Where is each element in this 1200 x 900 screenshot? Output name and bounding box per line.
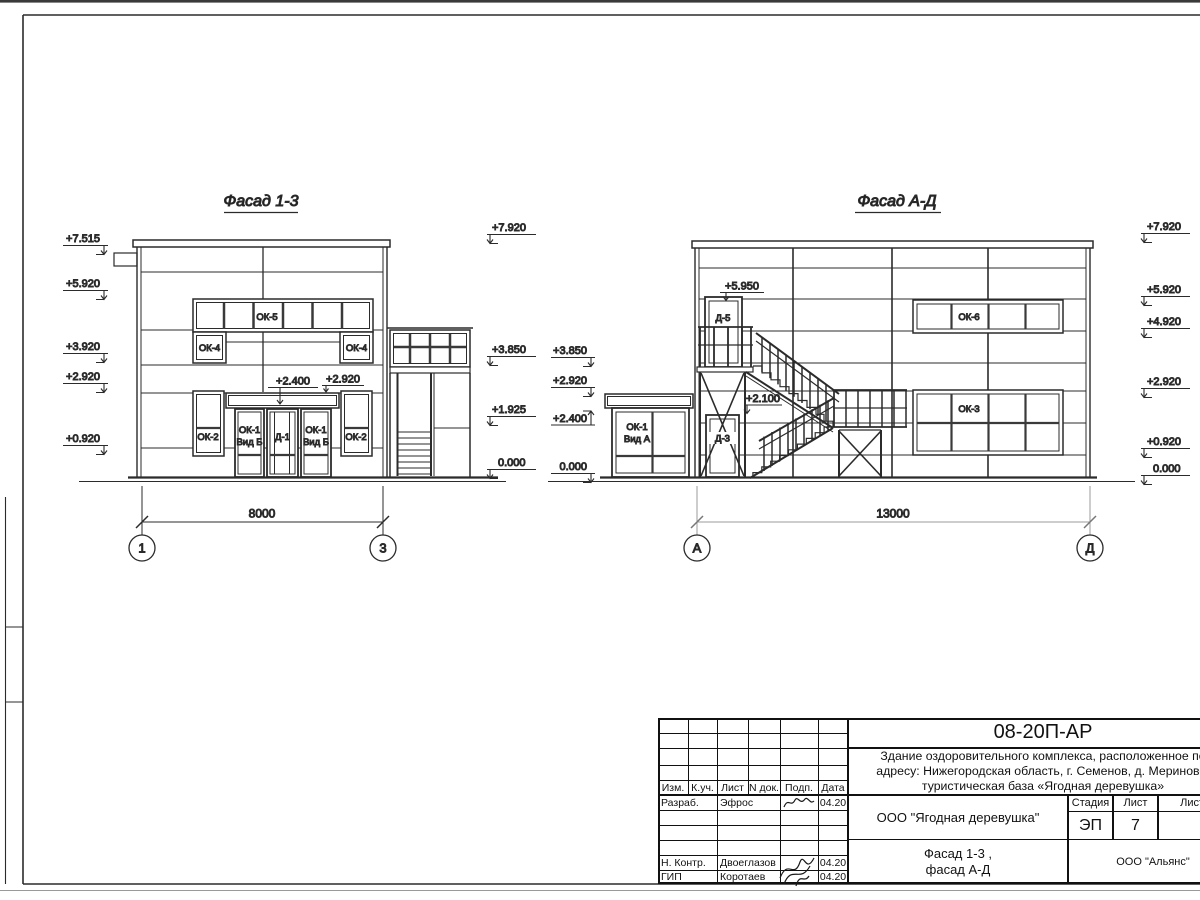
window-label: ОК-6 xyxy=(958,312,979,323)
stamp-role: Разраб. xyxy=(658,795,717,810)
elevation-mark-label: +2.920 xyxy=(1147,376,1181,388)
stair-tower: Д-3 xyxy=(700,372,745,477)
axes-fad: 13000 А Д xyxy=(684,486,1103,561)
elevation-mark-label: +2.100 xyxy=(746,393,780,405)
elevation-mark-label: 0.000 xyxy=(559,461,587,473)
window-label: ОК-5 xyxy=(256,312,277,323)
window-label: ОК-2 xyxy=(197,432,218,443)
dimension-label: 13000 xyxy=(876,507,910,521)
window-label: Вид Б xyxy=(236,437,262,448)
elevation-mark-label: +5.920 xyxy=(1147,284,1181,296)
signature xyxy=(780,795,818,810)
stamp-sheet-title-line2: фасад А-Д xyxy=(926,862,991,878)
elevation-marks-right: +7.920 +5.920 +4.920 +2.920 +0.920 0.000 xyxy=(1141,221,1190,485)
elevation-marks-right: +7.920 +3.850 +1.925 0.000 xyxy=(487,222,536,479)
elevation-mark-label: +2.920 xyxy=(326,374,360,386)
stamp-col-podp: Подп. xyxy=(780,780,818,795)
window-ok2-right: ОК-2 xyxy=(341,391,372,456)
facade-a-d-drawing: Фасад А-Д ОК-6 xyxy=(548,193,1190,561)
stamp-sheets-label: Листов xyxy=(1158,795,1200,811)
parapet-cap xyxy=(133,240,390,247)
window-label: Вид А xyxy=(624,434,651,445)
door-label: Д-5 xyxy=(716,313,731,324)
elevation-mark-label: +3.920 xyxy=(66,341,100,353)
elevation-mark-label: 0.000 xyxy=(1153,463,1181,475)
window-label: ОК-4 xyxy=(346,343,367,354)
entrance-glazing: ОК-1 Вид Б Д-1 ОК-1 Вид Б xyxy=(235,409,331,477)
stamp-project-line3: туристическая база «Ягодная деревушка» xyxy=(922,779,1164,794)
stamp-role: Н. Контр. xyxy=(658,855,717,870)
stamp-stage-value: ЭП xyxy=(1068,812,1113,839)
elevation-mark-label: +0.920 xyxy=(66,433,100,445)
door-d1 xyxy=(267,409,298,477)
window-ok2-left: ОК-2 xyxy=(193,391,224,456)
facade-a-d-title: Фасад А-Д xyxy=(857,193,936,210)
vent-pipe xyxy=(114,253,137,266)
elevation-mark-label: +3.850 xyxy=(553,345,587,357)
elevation-mark-label: 0.000 xyxy=(498,457,526,469)
stamp-sheet-title-line1: Фасад 1-3 , xyxy=(924,846,992,862)
facade-1-3-title: Фасад 1-3 xyxy=(224,193,299,210)
stamp-doc-number: 08-20П-АР xyxy=(848,718,1200,747)
window-label: Вид Б xyxy=(303,437,329,448)
drawing-sheet: Фасад 1-3 ОК-5 xyxy=(0,0,1200,900)
door-d5: Д-5 xyxy=(705,297,742,367)
axis-bubble-label: Д xyxy=(1086,541,1095,556)
stamp-name: Коротаев xyxy=(717,870,780,884)
elevation-mark-label: +7.920 xyxy=(492,222,526,234)
stamp-col-ndok: N док. xyxy=(748,780,780,795)
window-label: ОК-1 xyxy=(626,422,647,433)
stamp-project-line2: адресу: Нижегородская область, г. Семено… xyxy=(876,764,1200,779)
window-ok6: ОК-6 xyxy=(913,300,1063,333)
axis-bubble-label: А xyxy=(693,541,702,556)
elevation-mark-label: +2.920 xyxy=(66,371,100,383)
signature xyxy=(776,850,822,888)
stamp-date: 04.20 xyxy=(818,795,848,810)
window-label: ОК-4 xyxy=(199,343,220,354)
elevation-mark-label: +2.920 xyxy=(553,375,587,387)
door-label: Д-3 xyxy=(715,434,730,445)
stamp-sheet-label: Лист xyxy=(1113,795,1158,811)
window-label: ОК-3 xyxy=(958,404,979,415)
title-block: Изм. К.уч. Лист N док. Подп. Дата Разраб… xyxy=(658,718,1200,884)
stamp-date: 04.20 xyxy=(818,870,848,884)
parapet-cap xyxy=(692,241,1093,248)
stair-treads xyxy=(398,432,430,474)
window-label: ОК-1 xyxy=(305,425,326,436)
window-label: ОК-2 xyxy=(345,432,366,443)
elevation-marks-left: +3.850 +2.920 +2.400 0.000 xyxy=(551,345,595,483)
stamp-company: ООО "Альянс" xyxy=(1068,840,1200,883)
stamp-col-data: Дата xyxy=(818,780,848,795)
elevation-mark-d3: +2.100 xyxy=(744,393,782,414)
dimension-label: 8000 xyxy=(249,507,276,521)
stamp-col-kuch: К.уч. xyxy=(688,780,717,795)
x-brace-support xyxy=(839,430,881,477)
elevation-mark-label: +5.920 xyxy=(66,278,100,290)
axes-f13: 8000 1 3 xyxy=(129,486,396,561)
stamp-col-izm: Изм. xyxy=(658,780,688,795)
elevation-mark-label: +0.920 xyxy=(1147,436,1181,448)
stair-annex xyxy=(387,328,473,477)
elevation-mark-label: +3.850 xyxy=(492,344,526,356)
elevation-mark-label: +5.950 xyxy=(725,281,759,293)
stamp-name: Двоеглазов xyxy=(717,855,780,870)
window-ok4-left: ОК-4 xyxy=(193,332,226,363)
entrance-porch: ОК-1 Вид А xyxy=(605,394,693,477)
facade-1-3-drawing: Фасад 1-3 ОК-5 xyxy=(63,193,536,561)
window-label: ОК-1 xyxy=(239,425,260,436)
stamp-sheet-title: Фасад 1-3 , фасад А-Д xyxy=(848,840,1068,883)
elevation-mark-label: +2.400 xyxy=(276,376,310,388)
stamp-sheet-value: 7 xyxy=(1113,812,1158,839)
door-label: Д-1 xyxy=(275,432,290,443)
axis-bubble-label: 3 xyxy=(379,541,386,556)
stamp-date: 04.20 xyxy=(818,855,848,870)
stamp-stage-label: Стадия xyxy=(1068,795,1113,811)
stamp-client: ООО "Ягодная деревушка" xyxy=(848,795,1068,839)
elevation-mark-label: +1.925 xyxy=(492,404,526,416)
paper-top-edge xyxy=(0,0,1200,3)
window-ok4-right: ОК-4 xyxy=(340,332,373,363)
stamp-name: Эфрос xyxy=(717,795,780,810)
window-ok3: ОК-3 xyxy=(913,390,1063,455)
elevation-marks-left: +7.515 +5.920 +3.920 +2.920 +0.920 xyxy=(63,233,108,455)
elevation-mark-label: +7.920 xyxy=(1147,221,1181,233)
stamp-col-list: Лист xyxy=(717,780,748,795)
stamp-project-line1: Здание оздоровительного комплекса, распо… xyxy=(880,749,1200,764)
stamp-project-name: Здание оздоровительного комплекса, распо… xyxy=(848,748,1200,794)
elevation-mark-label: +4.920 xyxy=(1147,316,1181,328)
elevation-mark-label: +2.400 xyxy=(553,413,587,425)
stamp-role: ГИП xyxy=(658,870,717,884)
elevation-mark-label: +7.515 xyxy=(66,233,100,245)
axis-bubble-label: 1 xyxy=(138,541,145,556)
